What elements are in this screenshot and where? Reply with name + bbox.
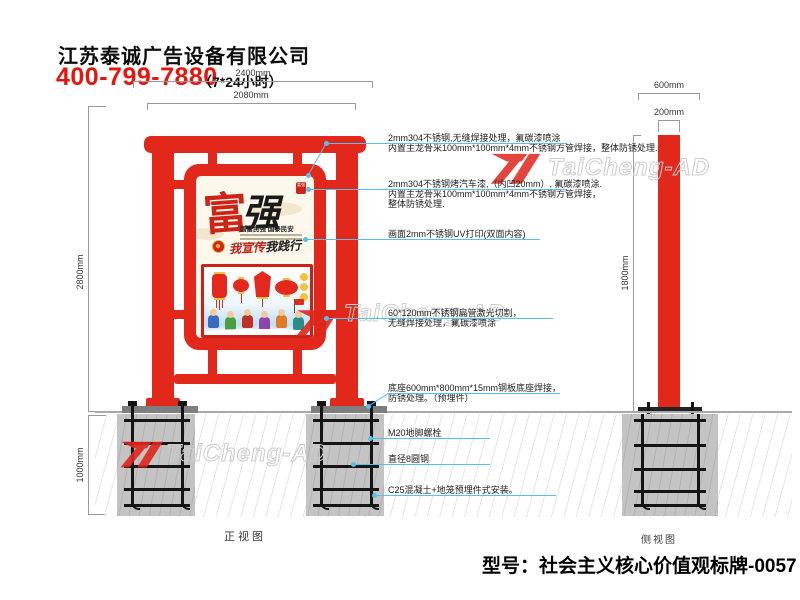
fine-print-line [240, 234, 302, 236]
front-view-label: 正视图 [224, 528, 266, 544]
service-phone: 400-799-7880 [56, 63, 218, 92]
rebar-bar [634, 468, 706, 471]
rebar-bar [124, 419, 190, 422]
watermark-text: TaiCheng-AD [548, 154, 710, 182]
rebar-bar [634, 490, 706, 493]
dim-label-1800: 1800mm [620, 243, 630, 303]
lantern-cap [283, 295, 290, 297]
figure-head [244, 309, 251, 316]
foundation-block [622, 414, 718, 516]
figure-head [210, 309, 217, 316]
callout-underline [388, 464, 490, 465]
callout-uv-print: 画面2mm不锈钢UV打印(双面内容) [388, 229, 526, 239]
ground-line [95, 411, 792, 413]
lantern-cap [214, 272, 225, 274]
lattice-stub [293, 348, 302, 376]
leader-line [326, 318, 388, 319]
dim-line-2800 [88, 106, 89, 412]
figure-head [227, 311, 234, 318]
leader-line [353, 464, 388, 465]
dim-line-2400 [133, 81, 373, 82]
gold-ornament [300, 273, 308, 281]
gold-ornament [300, 283, 308, 291]
callout-underline [388, 239, 540, 240]
lantern-tassel [219, 300, 220, 310]
callout-underline [388, 438, 490, 439]
leader-line [308, 189, 388, 190]
dim-line-200 [658, 120, 680, 121]
callout-steel-body: 2mm304不锈钢,无缝焊接处理，氟碳漆喷涂 内置主龙骨采100mm*100mm… [388, 133, 658, 153]
lantern-tassel [216, 300, 217, 308]
top-beam [144, 136, 366, 153]
lantern-tassel [262, 299, 263, 307]
rebar-bar [313, 419, 379, 422]
dim-line-600 [638, 93, 700, 94]
lantern-icon [212, 274, 227, 298]
leader-line [368, 393, 389, 407]
dim-label-200: 200mm [639, 107, 699, 117]
dim-label-2080: 2080mm [221, 90, 281, 100]
rebar-bar [124, 488, 190, 491]
rebar-bar [634, 444, 706, 447]
callout-underline [388, 143, 566, 144]
figure-head [278, 309, 285, 316]
callout-panel-paint: 2mm304不锈钢烤汽车漆,（内凹20mm）, 氟碳漆喷涂. 内置主龙骨采100… [388, 179, 602, 209]
lantern-icon [233, 279, 249, 292]
callout-anchor-bolt: M20地脚螺栓 [388, 428, 442, 438]
callout-underline [388, 189, 566, 190]
dim-label-1000: 1000mm [75, 435, 85, 495]
leader-line [370, 438, 388, 439]
figure [242, 315, 253, 328]
palace-lantern-icon [254, 271, 271, 297]
lattice-stub [208, 348, 217, 376]
callout-round-steel: 直径8圆钢 [388, 454, 429, 464]
dim-line-2080 [147, 103, 356, 104]
leader-line [326, 143, 388, 144]
model-label: 型号：社会主义核心价值观标牌-0057 [482, 551, 797, 578]
poster-slogan: 我宣传我践行 [229, 236, 310, 257]
figure-head [261, 311, 268, 318]
callout-underline [388, 318, 553, 319]
dim-label-2800: 2800mm [75, 242, 85, 302]
callout-base-plate: 底座600mm*800mm*15mm钢板底座焊接， 防锈处理。（预埋件） [388, 383, 561, 403]
dim-label-600: 600mm [639, 80, 699, 90]
technical-drawing-page: 江苏泰诚广告设备有限公司 400-799-7880 （7*24小时） 2400m… [0, 0, 800, 600]
dim-line-1000 [88, 415, 89, 515]
rebar-bar [313, 488, 379, 491]
lantern-icon [275, 280, 298, 295]
rebar-bar [124, 504, 190, 507]
callout-concrete: C25混凝土+地笼预埋件式安装。 [388, 485, 518, 495]
callout-underline [388, 393, 560, 394]
lantern-tassel [222, 300, 223, 308]
callout-underline [388, 495, 556, 496]
callout-flat-tube: 60*120mm不锈钢扁管激光切割， 无缝焊接处理，氟碳漆喷涂 [388, 308, 522, 328]
lantern-cap [283, 278, 290, 280]
party-emblem-icon [212, 240, 225, 253]
lantern-tassel [241, 294, 242, 303]
poster-seal: 富强 [296, 182, 306, 194]
rebar-bar [634, 419, 706, 422]
rebar-bar [313, 504, 379, 507]
lower-crossbar [174, 374, 336, 384]
leader-line [305, 239, 388, 240]
figure [208, 315, 219, 328]
figure [225, 317, 236, 330]
poster-subtitle: 国富民强 国泰民安 [240, 223, 294, 233]
lantern-cap [238, 277, 244, 279]
watermark-text: TaiCheng-AD [166, 440, 328, 468]
side-view-label: 侧视图 [641, 531, 677, 546]
lattice-stub [325, 180, 337, 189]
rebar-bar [634, 504, 706, 507]
brand-logo-icon [294, 305, 342, 338]
figure [276, 315, 287, 328]
dim-label-2400: 2400mm [223, 68, 283, 78]
leader-line [374, 495, 388, 496]
left-post [152, 150, 174, 408]
brand-logo-icon [118, 436, 166, 470]
